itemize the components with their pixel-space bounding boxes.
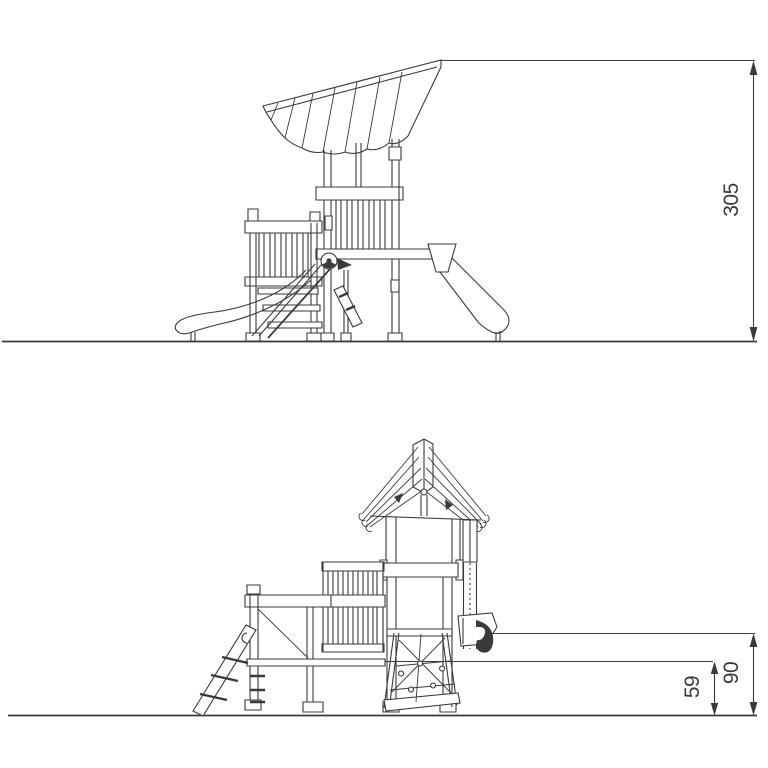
- lower-post-cap: [247, 585, 260, 594]
- slide-mount-funnel: [428, 244, 456, 272]
- lower-platform-posts: [250, 594, 313, 710]
- roof-kingpost: [421, 495, 427, 516]
- main-railing-beam: [316, 187, 403, 200]
- roof-eave-line: [370, 516, 481, 520]
- upper-view-side-elevation: 305: [2, 60, 757, 342]
- lower-platform-floor-59: [247, 659, 385, 666]
- main-railing-balusters: [336, 200, 385, 249]
- left-tower-balusters: [259, 233, 308, 277]
- left-tower-feet: [246, 333, 321, 341]
- roof-ridge-board: [413, 439, 433, 493]
- right-slide: [440, 258, 509, 333]
- dimension-label-305: 305: [720, 183, 743, 217]
- tower-beam: [382, 563, 458, 577]
- lower-diagonal-brace: [258, 609, 308, 658]
- main-tower-post-feet: [320, 333, 402, 341]
- technical-drawing-sheet: 305: [0, 0, 768, 768]
- dimension-label-90: 90: [720, 662, 743, 684]
- gable-wall-posts: [386, 517, 460, 563]
- panel-top-rail: [322, 562, 384, 571]
- lower-handrail-beam: [245, 595, 385, 607]
- lower-view-front-elevation: 90 59: [8, 439, 757, 716]
- pennant-flag: [337, 258, 352, 270]
- net-strands: [390, 634, 455, 702]
- panel-bottom-rail: [322, 644, 384, 652]
- stair-post-foot: [341, 333, 351, 341]
- dimension-label-59: 59: [681, 676, 704, 698]
- left-slide-support: [191, 332, 195, 341]
- steering-wheel-hub: [326, 258, 331, 263]
- playground-elevation-drawing: 305: [0, 0, 768, 768]
- tower-posts-lower: [387, 577, 452, 710]
- roof-apex-joint: [421, 489, 427, 495]
- canopy-roof: [263, 60, 441, 154]
